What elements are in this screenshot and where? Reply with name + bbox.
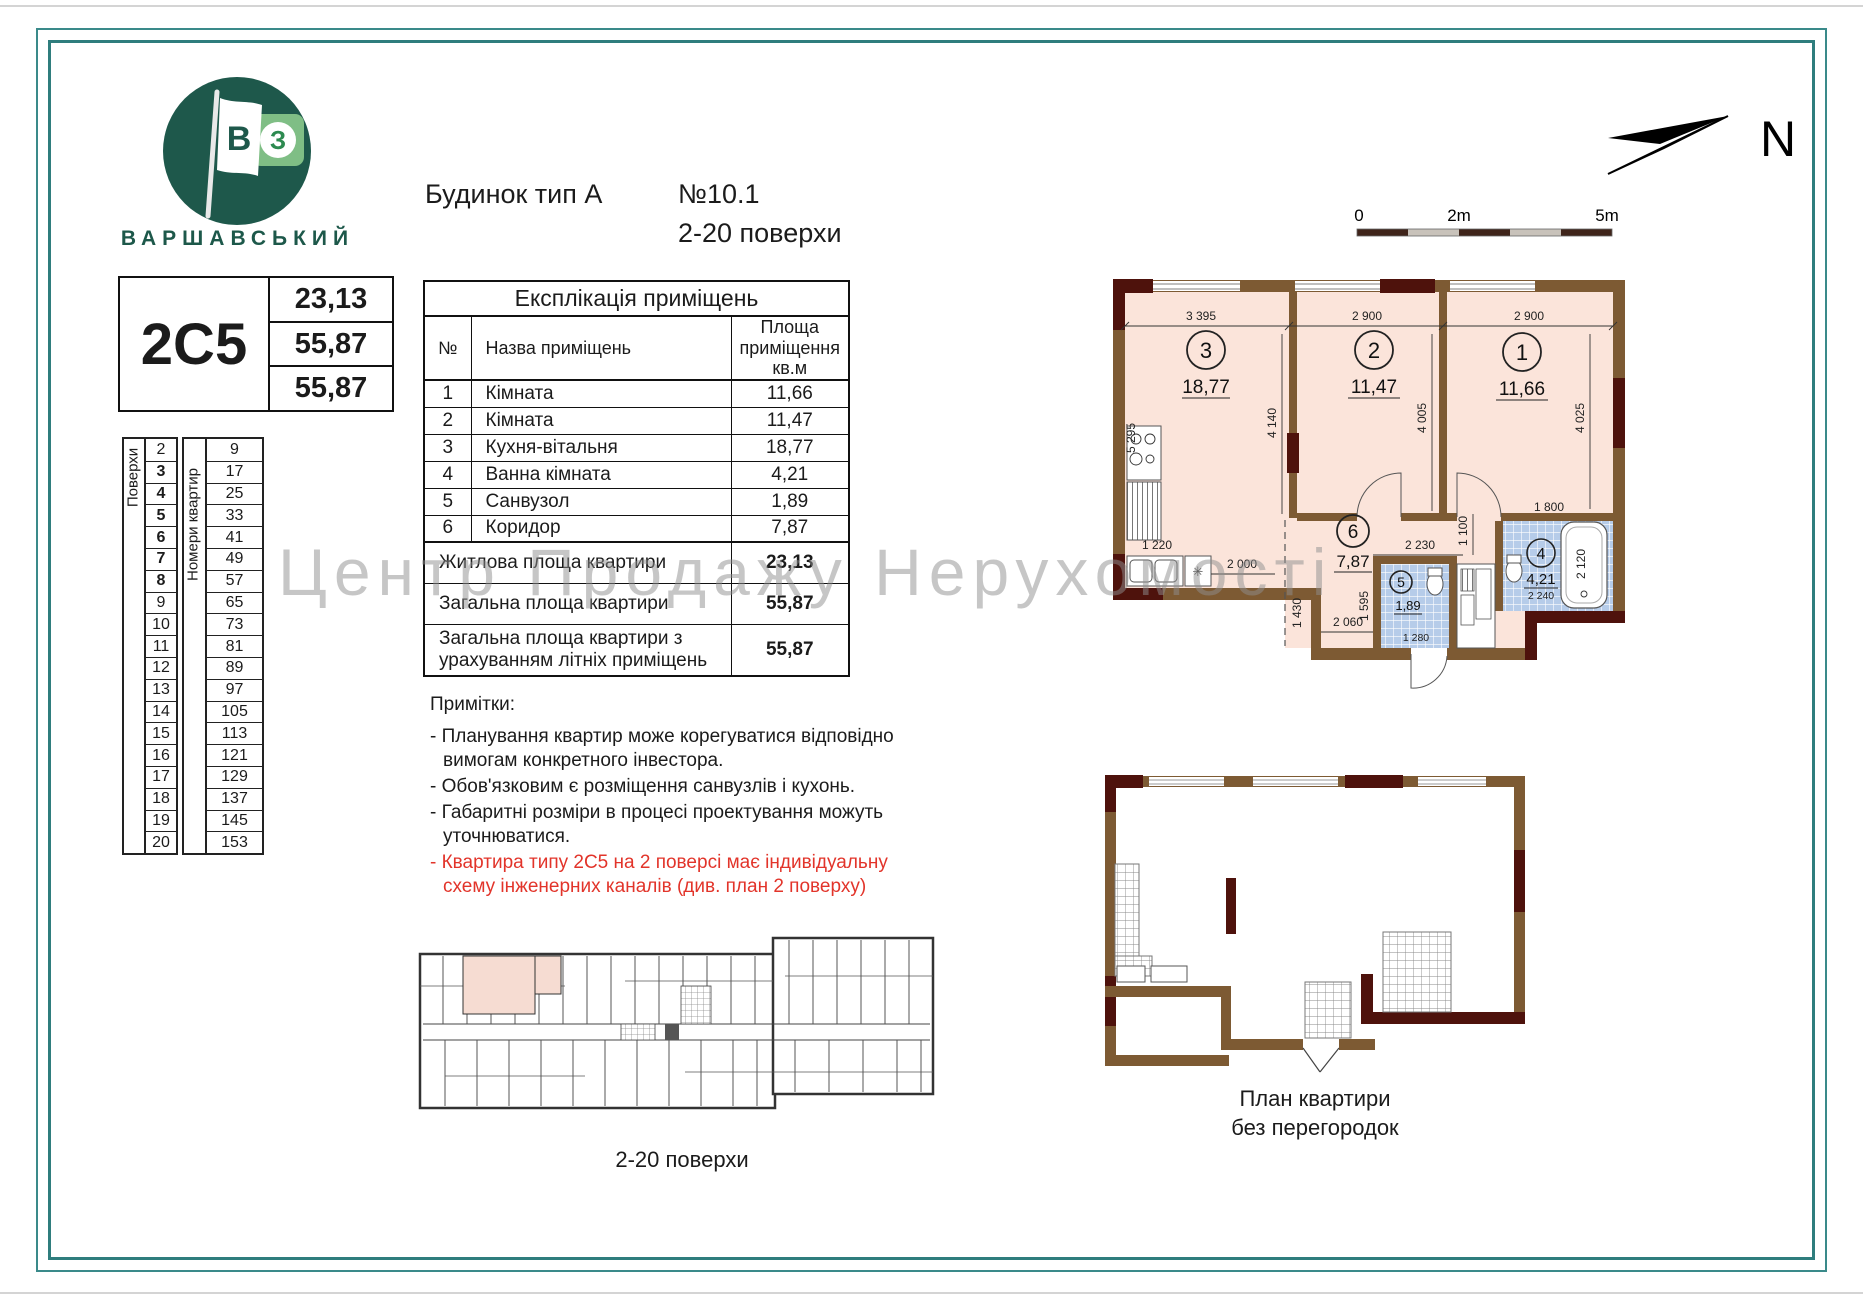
svg-text:1 100: 1 100	[1456, 516, 1470, 546]
apartment-number-cell: 153	[207, 831, 262, 853]
floor-cell: 7	[146, 548, 176, 570]
svg-text:2 900: 2 900	[1514, 309, 1544, 323]
col-header-area: Площа приміщення кв.м	[731, 316, 849, 380]
svg-text:2 240: 2 240	[1528, 590, 1554, 602]
svg-text:4: 4	[1537, 546, 1546, 563]
room-name: Кімната	[471, 407, 731, 434]
explication-row: 5Санвузол1,89	[424, 488, 849, 515]
brand-name: ВАРШАВСЬКИЙ	[85, 227, 390, 251]
watermark: Центр Продажу Нерухомості	[278, 534, 1333, 610]
north-needle-light	[1608, 116, 1728, 174]
floor-cell: 11	[146, 635, 176, 657]
total-label: Загальна площа квартири з урахуванням лі…	[424, 624, 731, 676]
logo-square-letter: З	[270, 125, 286, 155]
open-plan-entry-door	[1303, 1048, 1339, 1072]
col-header-no: №	[424, 316, 471, 380]
scale-five-m: 5m	[1595, 206, 1619, 225]
svg-text:2 120: 2 120	[1574, 549, 1588, 579]
floor-cell: 17	[146, 766, 176, 788]
room-number: 3	[424, 434, 471, 461]
explication-total-row: Загальна площа квартири з урахуванням лі…	[424, 624, 849, 676]
brand-logo: В З	[140, 58, 340, 248]
room-name: Ванна кімната	[471, 461, 731, 488]
room-number: 1	[424, 380, 471, 407]
note-item: - Планування квартир може корегуватися в…	[430, 725, 935, 773]
floor-cell: 12	[146, 657, 176, 679]
svg-text:2: 2	[1368, 338, 1380, 363]
floor-cell: 4	[146, 483, 176, 505]
open-plan-fixtures	[1117, 966, 1187, 982]
apartment-number-cell: 129	[207, 766, 262, 788]
room-area: 11,66	[731, 380, 849, 407]
scale-zero: 0	[1354, 206, 1363, 225]
floors-column: 234567891011121314151617181920	[144, 437, 178, 855]
open-plan-label-line1: План квартири	[1155, 1085, 1475, 1114]
highlighted-apartment	[463, 956, 535, 1014]
svg-text:1: 1	[1516, 340, 1528, 365]
highlighted-apartment-part	[535, 956, 561, 994]
apartment-number-cell: 73	[207, 613, 262, 635]
floor-cell: 16	[146, 744, 176, 766]
apartment-number-cell: 137	[207, 788, 262, 810]
apartment-number-cell: 49	[207, 548, 262, 570]
open-plan-label: План квартири без перегородок	[1155, 1085, 1475, 1142]
svg-text:4 005: 4 005	[1415, 403, 1429, 433]
note-item: - Квартира типу 2С5 на 2 поверсі має інд…	[430, 851, 935, 899]
svg-text:7,87: 7,87	[1336, 552, 1369, 571]
living-area-value: 23,13	[270, 278, 392, 321]
apartment-number-cell: 33	[207, 504, 262, 526]
wc-toilet	[1427, 568, 1443, 595]
main-floor-plan: ✳	[1105, 268, 1637, 698]
apartment-number-cell: 41	[207, 526, 262, 548]
open-plan-shafts	[1115, 864, 1451, 1038]
room-area: 4,21	[731, 461, 849, 488]
scale-bar-segments	[1357, 229, 1612, 236]
floor-cell: 5	[146, 504, 176, 526]
apartment-number-cell: 89	[207, 657, 262, 679]
building-type-title: Будинок тип А	[425, 179, 602, 210]
svg-text:1 595: 1 595	[1357, 591, 1371, 621]
ventilation-shafts	[1457, 564, 1495, 648]
explication-head: Експлікація приміщень № Назва приміщень …	[424, 281, 849, 380]
explication-row: 2Кімната11,47	[424, 407, 849, 434]
floor-cell: 13	[146, 679, 176, 701]
floors-range-title: 2-20 поверхи	[678, 218, 842, 249]
svg-text:3 395: 3 395	[1186, 309, 1216, 323]
explication-title: Експлікація приміщень	[424, 281, 849, 316]
floor-cell: 2	[146, 439, 176, 461]
svg-text:3: 3	[1200, 338, 1212, 363]
apartment-number-cell: 17	[207, 461, 262, 483]
note-item: - Обов'язковим є розміщення санвузлів і …	[430, 775, 935, 799]
svg-text:18,77: 18,77	[1182, 377, 1230, 398]
explication-row: 3Кухня-вітальня18,77	[424, 434, 849, 461]
overview-plan-label: 2-20 поверхи	[594, 1146, 770, 1175]
svg-text:1 800: 1 800	[1534, 500, 1564, 514]
apartment-number-cell: 65	[207, 592, 262, 614]
svg-text:2 230: 2 230	[1405, 538, 1435, 552]
svg-text:11,66: 11,66	[1499, 379, 1545, 400]
apartment-numbers-column: 9172533414957657381899710511312112913714…	[205, 437, 264, 855]
room-name: Санвузол	[471, 488, 731, 515]
floor-plan-sheet: В З ВАРШАВСЬКИЙ Будинок тип А №10.1 2-20…	[0, 0, 1863, 1300]
room-number: 5	[424, 488, 471, 515]
scan-artifact-bottom	[0, 1292, 1863, 1294]
apartment-number-cell: 57	[207, 570, 262, 592]
apartment-number-cell: 145	[207, 810, 262, 832]
floor-cell: 10	[146, 613, 176, 635]
total-area-summer-value: 55,87	[270, 365, 392, 410]
open-plan-chimney	[1226, 878, 1236, 934]
apartment-card: 2С5 23,13 55,87 55,87	[118, 276, 394, 412]
open-plan-label-line2: без перегородок	[1155, 1114, 1475, 1143]
floors-label: Поверхи	[125, 418, 142, 538]
svg-text:4 025: 4 025	[1573, 403, 1587, 433]
room-number: 4	[424, 461, 471, 488]
floor-cell: 15	[146, 722, 176, 744]
room-area: 18,77	[731, 434, 849, 461]
north-arrow: N	[1598, 100, 1798, 185]
explication-rooms: 1Кімната11,662Кімната11,473Кухня-вітальн…	[424, 380, 849, 542]
scale-two-m: 2m	[1447, 206, 1471, 225]
svg-text:4 140: 4 140	[1265, 408, 1279, 438]
room-name: Кімната	[471, 380, 731, 407]
room-name: Кухня-вітальня	[471, 434, 731, 461]
building-overview-plan	[385, 926, 945, 1126]
apartment-code: 2С5	[120, 278, 270, 410]
room-number: 2	[424, 407, 471, 434]
logo-flag-letter: В	[227, 120, 252, 158]
explication-row: 1Кімната11,66	[424, 380, 849, 407]
floor-cell: 9	[146, 592, 176, 614]
scale-bar: 0 2m 5m	[1352, 206, 1627, 246]
north-needle-dark	[1608, 116, 1728, 144]
apartment-number-cell: 9	[207, 439, 262, 461]
floor-cell: 20	[146, 831, 176, 853]
apartment-number-cell: 97	[207, 679, 262, 701]
svg-text:5 295: 5 295	[1124, 423, 1138, 453]
room-area: 1,89	[731, 488, 849, 515]
kitchen-counter	[1127, 482, 1161, 540]
svg-text:1 280: 1 280	[1403, 632, 1429, 644]
svg-text:2 900: 2 900	[1352, 309, 1382, 323]
floor-cell: 8	[146, 570, 176, 592]
apartment-number-cell: 113	[207, 722, 262, 744]
bathroom-toilet	[1506, 555, 1522, 582]
svg-text:1,89: 1,89	[1395, 598, 1420, 613]
notes-list: - Планування квартир може корегуватися в…	[430, 725, 935, 899]
total-area: 55,87	[731, 624, 849, 676]
apartment-number-cell: 81	[207, 635, 262, 657]
note-item: - Габаритні розміри в процесі проектуван…	[430, 801, 935, 849]
apartment-number-cell: 121	[207, 744, 262, 766]
total-area-value: 55,87	[270, 321, 392, 366]
svg-text:11,47: 11,47	[1351, 377, 1397, 398]
apartment-number-cell: 25	[207, 483, 262, 505]
col-header-name: Назва приміщень	[471, 316, 731, 380]
svg-text:4,21: 4,21	[1526, 571, 1555, 588]
apartment-numbers-label: Номери квартир	[185, 440, 202, 610]
floor-cell: 3	[146, 461, 176, 483]
floor-cell: 6	[146, 526, 176, 548]
notes-title: Примітки:	[430, 693, 935, 717]
room-area: 11,47	[731, 407, 849, 434]
building-number: №10.1	[678, 179, 760, 210]
north-label: N	[1760, 111, 1796, 167]
open-plan	[1093, 760, 1538, 1100]
floor-cell: 14	[146, 701, 176, 723]
explication-table: Експлікація приміщень № Назва приміщень …	[423, 280, 850, 677]
explication-row: 4Ванна кімната4,21	[424, 461, 849, 488]
svg-text:5: 5	[1397, 574, 1405, 590]
notes-block: Примітки: - Планування квартир може коре…	[430, 693, 935, 901]
svg-text:6: 6	[1348, 522, 1359, 543]
apartment-card-values: 23,13 55,87 55,87	[270, 278, 392, 410]
scan-artifact-top	[0, 5, 1863, 7]
entry-door	[1411, 654, 1447, 688]
apartment-number-cell: 105	[207, 701, 262, 723]
floor-cell: 19	[146, 810, 176, 832]
floor-cell: 18	[146, 788, 176, 810]
